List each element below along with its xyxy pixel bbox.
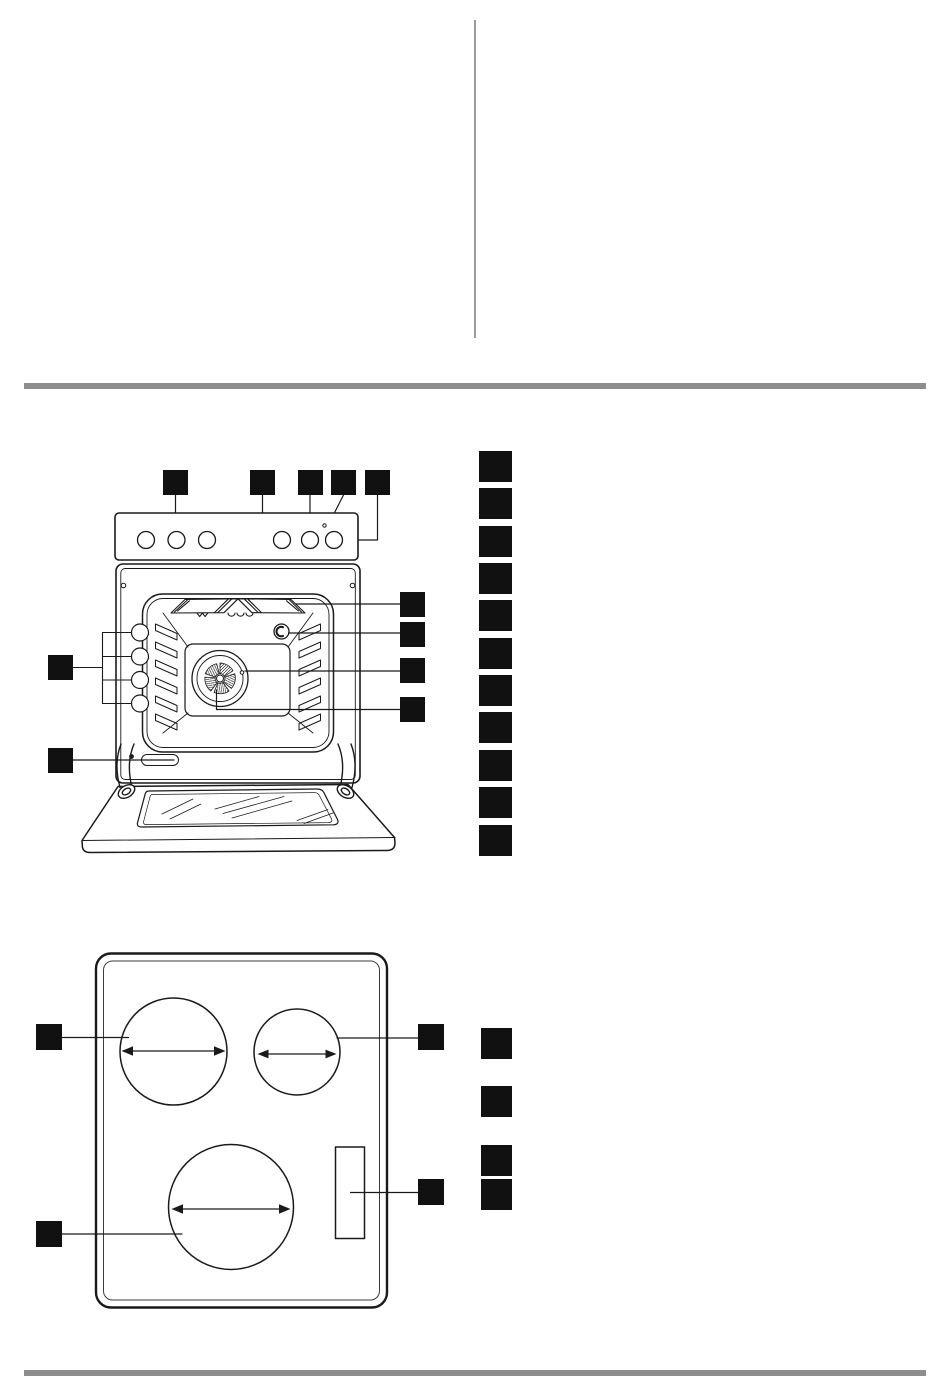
hob-callout-box <box>418 1179 444 1205</box>
oven-legend-box <box>479 526 512 557</box>
hob-knob-2 <box>168 532 185 549</box>
oven-legend-box <box>479 825 512 856</box>
shelf-level-bracket <box>73 633 132 704</box>
hob-top-diagram <box>62 954 418 1308</box>
hob-callout-box <box>36 1221 62 1247</box>
oven-legend-box <box>479 787 512 818</box>
oven-callout-box <box>163 470 188 495</box>
oven-callout-box <box>400 697 425 722</box>
oven-knob-2 <box>302 532 319 549</box>
hob-legend-box <box>481 1028 512 1059</box>
door-hinge-left <box>116 744 137 801</box>
indicator-dot <box>323 524 326 527</box>
oven-lamp <box>274 624 289 639</box>
oven-callout-box <box>331 470 356 495</box>
hotplate-rear-large <box>169 1145 294 1270</box>
oven-callout-box <box>400 592 425 617</box>
oven-callout-box <box>365 470 390 495</box>
control-panel <box>115 513 358 560</box>
fan-screw-dot <box>240 671 244 675</box>
oven-legend-box <box>479 451 512 482</box>
oven-callout-box <box>400 622 425 647</box>
hob-callout-box <box>36 1024 62 1050</box>
oven-callout-box <box>48 655 73 680</box>
grill-element <box>171 599 305 617</box>
oven-legend-box <box>479 675 512 706</box>
face-screw-right <box>350 583 355 588</box>
oven-legend-box <box>479 600 512 631</box>
oven-legend-box <box>479 488 512 519</box>
diameter-arrows <box>122 1046 337 1213</box>
hob-callout-box <box>418 1024 444 1050</box>
oven-legend-box <box>479 638 512 669</box>
shelf-rack-right <box>299 624 321 730</box>
hob-knob-1 <box>138 532 155 549</box>
oven-knob-1 <box>274 532 291 549</box>
diagram-line-art <box>0 0 950 1381</box>
shelf-level-circles <box>132 624 149 712</box>
oven-callout-box <box>48 748 73 773</box>
oven-callout-box <box>400 658 425 683</box>
rating-plate <box>73 754 179 765</box>
oven-legend-box <box>479 563 512 594</box>
cooling-fan <box>192 651 248 707</box>
oven-legend-box <box>479 750 512 781</box>
oven-legend-box <box>479 712 512 743</box>
oven-callout-box <box>250 470 275 495</box>
door-hinge-right <box>335 744 356 801</box>
shelf-rack-left <box>156 624 178 730</box>
manual-page <box>0 0 950 1381</box>
hob-legend-box <box>481 1145 512 1176</box>
hob-legend-box <box>481 1179 512 1210</box>
oven-knob-3 <box>326 532 343 549</box>
back-panel <box>185 644 290 716</box>
oven-callout-box <box>298 470 323 495</box>
oven-front-diagram <box>73 495 400 853</box>
hob-surface <box>96 954 387 1308</box>
hob-knob-3 <box>199 532 216 549</box>
hob-legend-box <box>481 1086 512 1117</box>
face-screw-left <box>121 583 126 588</box>
